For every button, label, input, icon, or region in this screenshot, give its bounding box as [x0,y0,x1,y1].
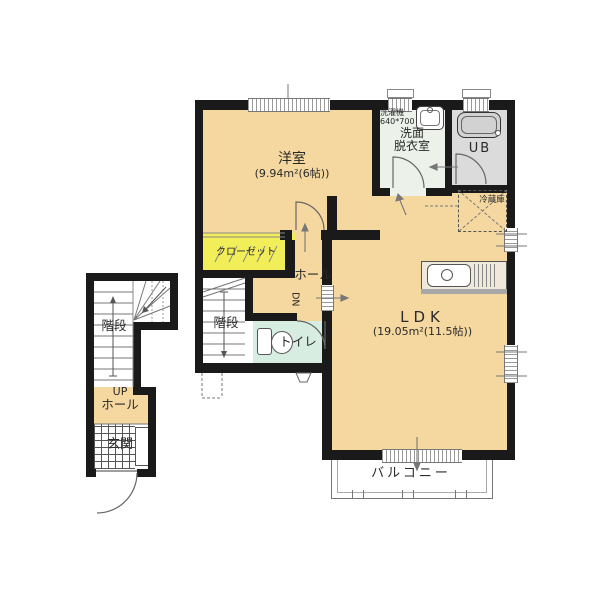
window-right-lower-ticks [496,352,527,376]
washroom-entry-arrow [399,198,406,215]
arrowhead [396,194,403,201]
up-hall-label: UP ホール [92,386,148,412]
ldk-label: LDK (19.05m²(11.5帖)) [345,309,500,338]
washing-machine-label: 洗濯機 640*700 [380,109,416,127]
stairs-left-steps [94,281,170,387]
room-area: (9.94m²(6帖)) [212,168,372,180]
toilet-label: トイレ [272,335,324,349]
stairs-below-dashed [202,373,222,398]
stairs-center-label: 階段 [203,316,249,330]
room-name-line2: 脱衣室 [380,140,444,153]
western-room-door-arc [296,202,324,230]
washroom-label: 洗面 脱衣室 [380,127,444,154]
entrance-label: 玄関 [98,438,142,453]
balcony-label: バルコニー [356,467,466,482]
stairs-left-up-arrowhead [110,296,116,303]
dn-label: DN [289,286,300,312]
room-name: LDK [345,309,500,326]
unit-bath-door-arc [456,154,486,184]
unit-bath-label: UB [462,142,498,157]
arrowhead [341,295,348,301]
arrowhead [430,164,437,170]
stairs-left-label: 階段 [94,319,134,333]
room-area: (19.05m²(11.5帖)) [345,326,500,338]
arrowhead [302,224,308,231]
hall-label: ホール [290,268,336,282]
vent-mark [296,373,311,382]
hall-label: ホール [92,398,148,412]
western-room-label: 洋室 (9.94m²(6帖)) [212,152,372,180]
washroom-door-arc [393,157,424,188]
room-name: 洋室 [212,152,372,168]
window-right-upper-ticks [496,234,527,246]
closet-label: クローゼット [206,247,286,258]
entrance-door-arc [96,471,137,513]
floor-plan: 洋室 (9.94m²(6帖)) LDK (19.05m²(11.5帖)) 洗面 … [0,0,600,600]
refrigerator-label: 冷蔵庫 [475,196,509,206]
fixture-size: 640*700 [380,118,416,127]
